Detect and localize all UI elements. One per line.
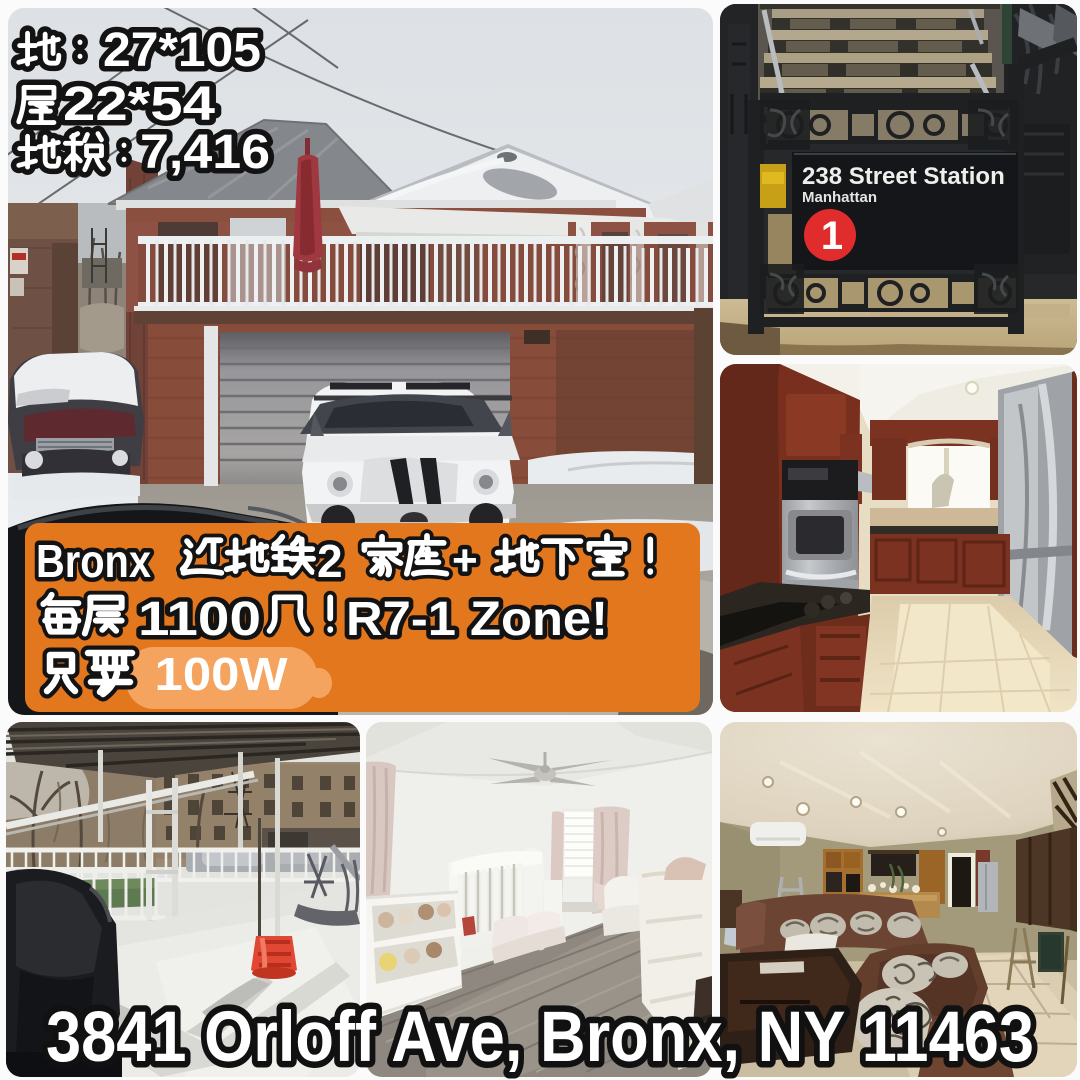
- svg-text:2: 2: [317, 535, 343, 587]
- svg-text:1100: 1100: [138, 593, 261, 646]
- svg-text:R7-1 Zone!: R7-1 Zone!: [346, 593, 608, 646]
- svg-text:238 Street Station: 238 Street Station: [802, 163, 1005, 190]
- svg-text:27*105: 27*105: [103, 24, 261, 77]
- svg-text:+: +: [452, 536, 478, 585]
- svg-text:22*54: 22*54: [63, 78, 215, 131]
- svg-text:1: 1: [821, 214, 843, 258]
- svg-text:Bronx: Bronx: [36, 535, 151, 587]
- svg-text:3841 Orloff Ave, Bronx, NY 114: 3841 Orloff Ave, Bronx, NY 11463: [46, 998, 1034, 1077]
- svg-text:7,416: 7,416: [140, 126, 270, 179]
- svg-text:Manhattan: Manhattan: [802, 189, 877, 206]
- svg-text:100W: 100W: [155, 648, 289, 700]
